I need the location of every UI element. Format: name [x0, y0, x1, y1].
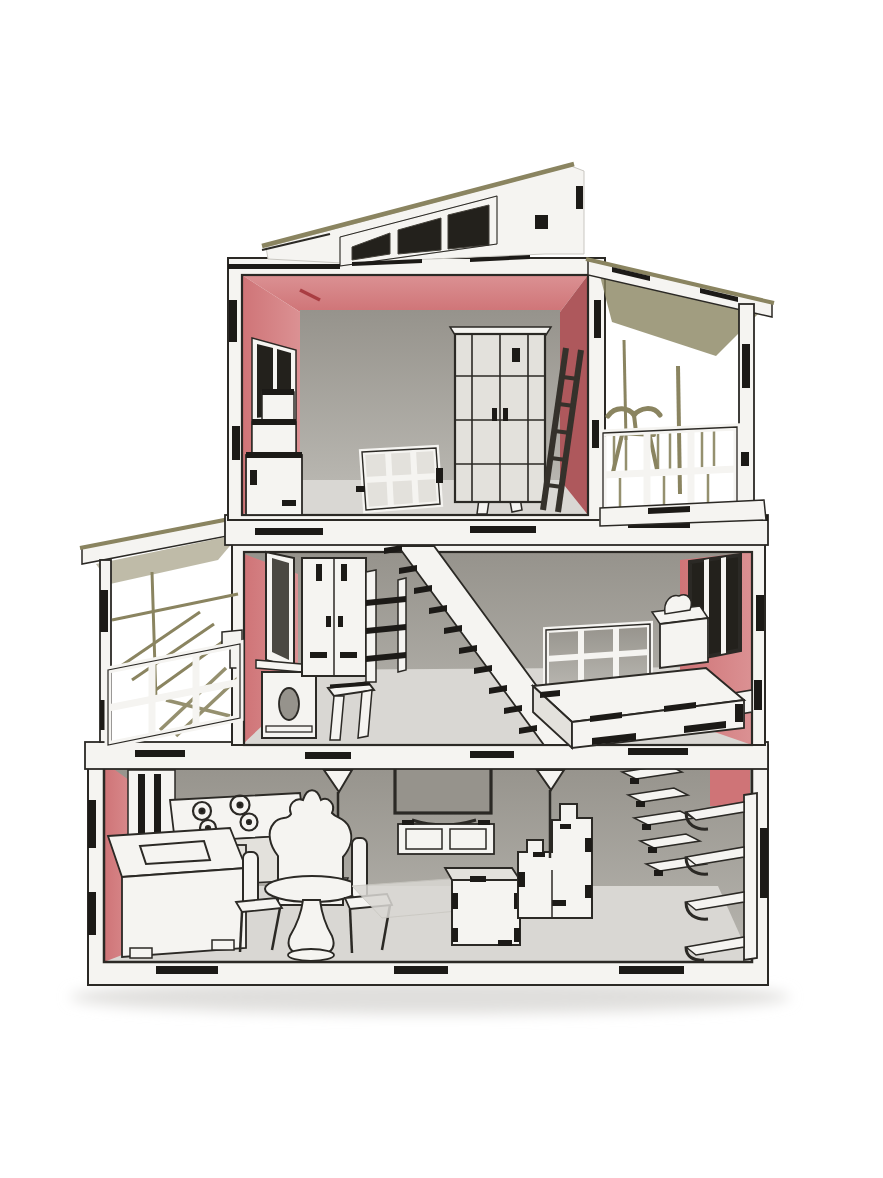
- ground-floor: [88, 745, 768, 985]
- top-floor: [228, 258, 605, 520]
- window-lattice: [356, 448, 443, 510]
- balcony-back-post: [624, 340, 626, 440]
- table-base: [288, 949, 334, 961]
- console-tab: [402, 820, 414, 825]
- dollhouse-illustration: [0, 0, 883, 1178]
- counter-foot: [212, 940, 234, 950]
- pink-ceiling: [242, 275, 588, 312]
- coffee-table: [445, 868, 520, 946]
- tv-screen: [395, 765, 491, 813]
- roof-vent-tab: [535, 215, 548, 229]
- balcony-corner-post: [739, 304, 754, 512]
- vanity-cutout: [279, 688, 299, 720]
- tv-unit: [395, 765, 494, 854]
- console-tab: [478, 820, 490, 825]
- attic-wardrobe: [450, 327, 551, 502]
- middle-floor: [232, 540, 765, 748]
- photo-of-dollhouse: [0, 0, 883, 1178]
- counter-foot: [130, 948, 152, 958]
- roof-fascia-tab: [576, 186, 583, 209]
